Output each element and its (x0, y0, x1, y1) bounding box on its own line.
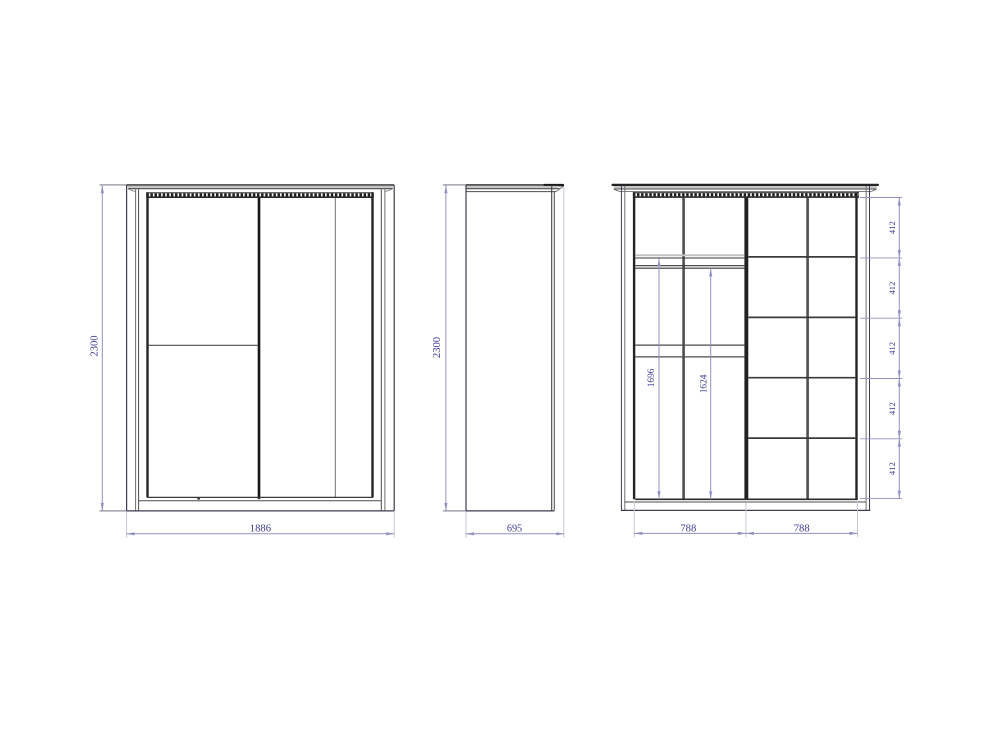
svg-text:412: 412 (887, 342, 897, 355)
svg-text:1624: 1624 (700, 374, 710, 393)
svg-text:788: 788 (794, 523, 810, 534)
svg-text:1696: 1696 (647, 368, 657, 387)
svg-text:2300: 2300 (89, 335, 100, 356)
svg-text:412: 412 (887, 282, 897, 295)
svg-text:412: 412 (887, 221, 897, 234)
svg-text:788: 788 (680, 523, 696, 534)
svg-text:695: 695 (507, 524, 522, 535)
svg-text:412: 412 (887, 462, 897, 475)
svg-text:2300: 2300 (432, 337, 443, 358)
svg-text:1886: 1886 (250, 524, 271, 535)
svg-text:412: 412 (887, 402, 897, 415)
